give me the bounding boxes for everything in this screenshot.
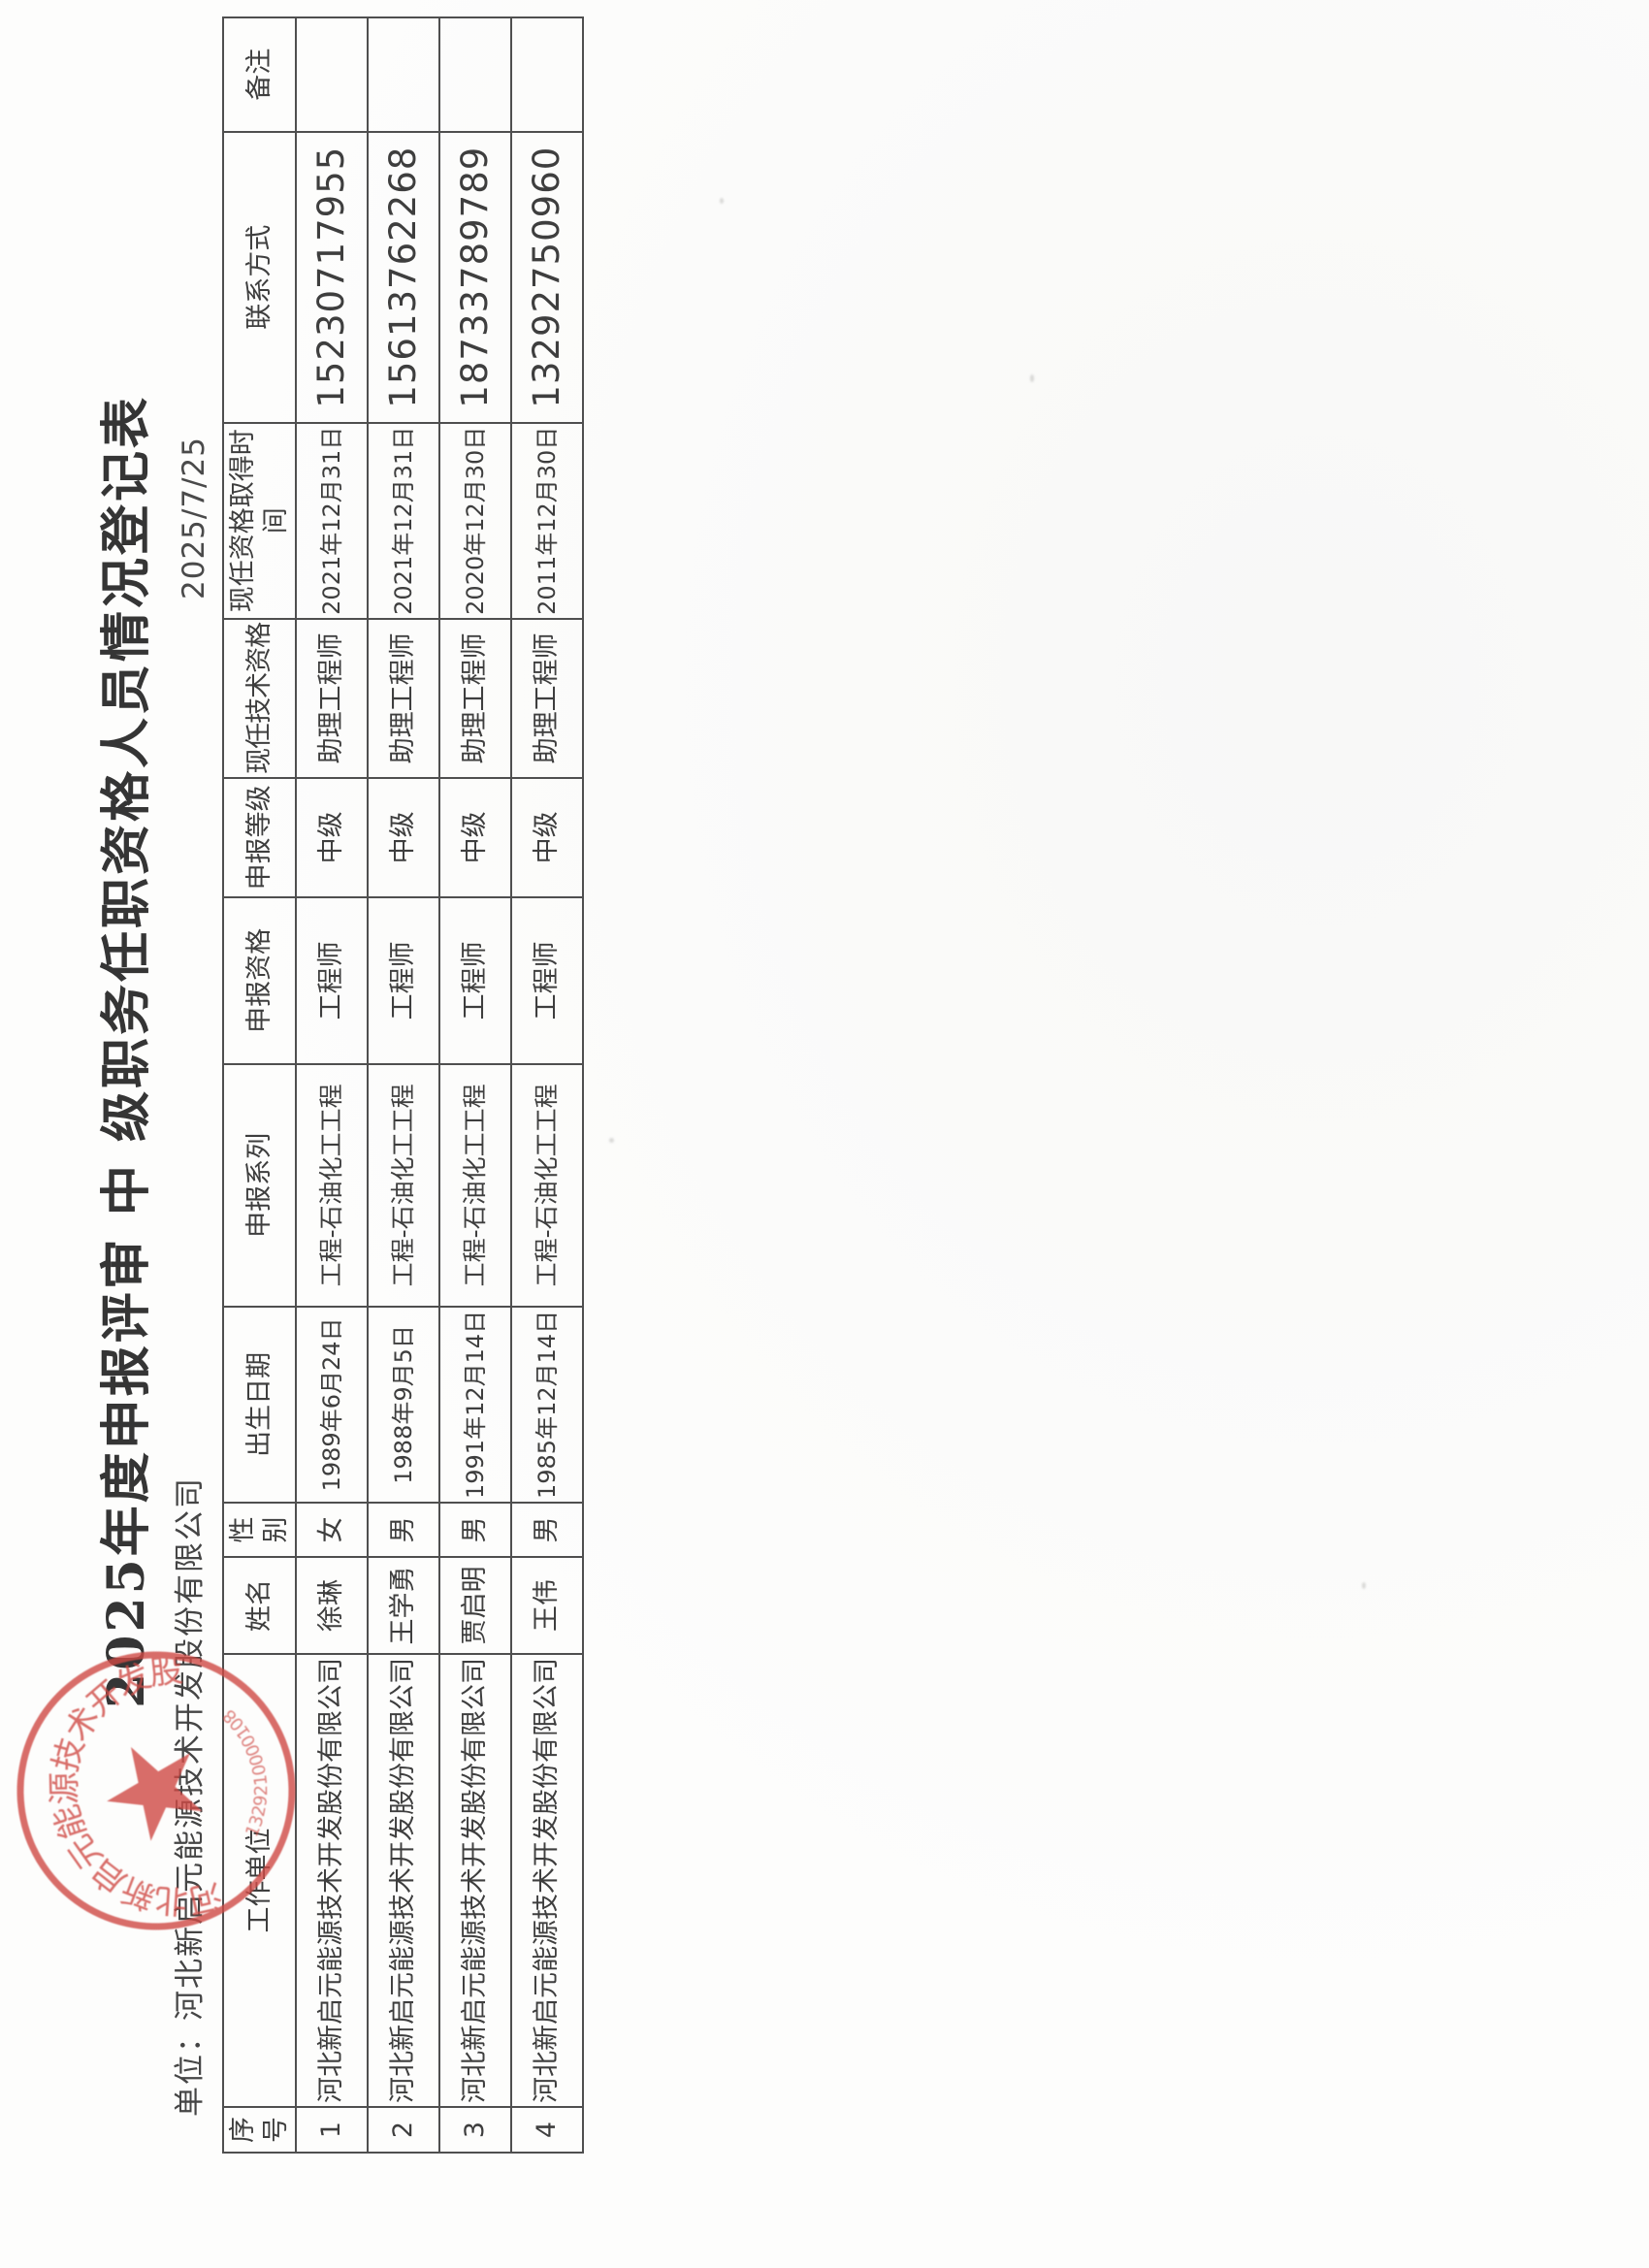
- cell-qual: 工程师: [511, 897, 583, 1064]
- cell-level: 中级: [511, 778, 583, 897]
- header-cell-birth: 出生日期: [223, 1307, 296, 1503]
- cell-remark: [368, 17, 439, 132]
- cell-level: 中级: [439, 778, 511, 897]
- cell-employer: 河北新启元能源技术开发股份有限公司: [296, 1654, 368, 2107]
- scan-speck: [720, 198, 724, 204]
- cell-current: 助理工程师: [511, 619, 583, 778]
- page-title: 2025年度申报评审 中 级职务任职资格人员情况登记表: [85, 395, 158, 1708]
- cell-gender: 男: [511, 1503, 583, 1557]
- cell-obtained: 2021年12月31日: [296, 423, 368, 619]
- header-cell-current: 现任技术资格: [223, 619, 296, 778]
- cell-index: 4: [511, 2107, 583, 2153]
- cell-birth: 1991年12月14日: [439, 1307, 511, 1503]
- scan-speck: [1362, 1582, 1366, 1589]
- cell-birth: 1985年12月14日: [511, 1307, 583, 1503]
- personnel-table: 序号工作单位姓名性别出生日期申报系列申报资格申报等级现任技术资格现任资格取得时间…: [222, 16, 584, 2154]
- cell-contact: 13292750960: [511, 132, 583, 423]
- cell-index: 3: [439, 2107, 511, 2153]
- scanned-page: 2025年度申报评审 中 级职务任职资格人员情况登记表 单位：河北新启元能源技术…: [0, 0, 1649, 2268]
- cell-series: 工程-石油化工工程: [439, 1064, 511, 1307]
- date-label: 2025/7/25: [177, 437, 211, 599]
- cell-birth: 1988年9月5日: [368, 1307, 439, 1503]
- cell-index: 2: [368, 2107, 439, 2153]
- unit-line: 单位：河北新启元能源技术开发股份有限公司: [165, 1476, 209, 2117]
- cell-employer: 河北新启元能源技术开发股份有限公司: [511, 1654, 583, 2107]
- cell-obtained: 2021年12月31日: [368, 423, 439, 619]
- cell-current: 助理工程师: [368, 619, 439, 778]
- cell-qual: 工程师: [368, 897, 439, 1064]
- scan-speck: [1030, 374, 1034, 382]
- table-row-3: 3河北新启元能源技术开发股份有限公司贾启明男1991年12月14日工程-石油化工…: [439, 17, 511, 2153]
- table-row-2: 2河北新启元能源技术开发股份有限公司王学勇男1988年9月5日工程-石油化工工程…: [368, 17, 439, 2153]
- cell-gender: 男: [368, 1503, 439, 1557]
- header-cell-obtained: 现任资格取得时间: [223, 423, 296, 619]
- cell-employer: 河北新启元能源技术开发股份有限公司: [439, 1654, 511, 2107]
- cell-index: 1: [296, 2107, 368, 2153]
- cell-employer: 河北新启元能源技术开发股份有限公司: [368, 1654, 439, 2107]
- cell-remark: [439, 17, 511, 132]
- cell-contact: 15230717955: [296, 132, 368, 423]
- cell-current: 助理工程师: [296, 619, 368, 778]
- cell-remark: [511, 17, 583, 132]
- cell-gender: 男: [439, 1503, 511, 1557]
- cell-qual: 工程师: [439, 897, 511, 1064]
- cell-name: 王伟: [511, 1557, 583, 1654]
- header-cell-gender: 性别: [223, 1503, 296, 1557]
- table-header-row: 序号工作单位姓名性别出生日期申报系列申报资格申报等级现任技术资格现任资格取得时间…: [223, 17, 296, 2153]
- cell-name: 贾启明: [439, 1557, 511, 1654]
- cell-remark: [296, 17, 368, 132]
- cell-series: 工程-石油化工工程: [368, 1064, 439, 1307]
- document-sheet: 2025年度申报评审 中 级职务任职资格人员情况登记表 单位：河北新启元能源技术…: [0, 0, 1649, 2268]
- table-head: 序号工作单位姓名性别出生日期申报系列申报资格申报等级现任技术资格现任资格取得时间…: [223, 17, 296, 2153]
- header-cell-remark: 备注: [223, 17, 296, 132]
- cell-name: 王学勇: [368, 1557, 439, 1654]
- cell-contact: 18733789789: [439, 132, 511, 423]
- cell-current: 助理工程师: [439, 619, 511, 778]
- header-cell-employer: 工作单位: [223, 1654, 296, 2107]
- cell-name: 徐琳: [296, 1557, 368, 1654]
- header-cell-series: 申报系列: [223, 1064, 296, 1307]
- cell-qual: 工程师: [296, 897, 368, 1064]
- header-cell-index: 序号: [223, 2107, 296, 2153]
- header-cell-qual: 申报资格: [223, 897, 296, 1064]
- cell-birth: 1989年6月24日: [296, 1307, 368, 1503]
- cell-obtained: 2020年12月30日: [439, 423, 511, 619]
- cell-series: 工程-石油化工工程: [511, 1064, 583, 1307]
- table-row-1: 1河北新启元能源技术开发股份有限公司徐琳女1989年6月24日工程-石油化工工程…: [296, 17, 368, 2153]
- cell-contact: 15613762268: [368, 132, 439, 423]
- header-cell-contact: 联系方式: [223, 132, 296, 423]
- cell-gender: 女: [296, 1503, 368, 1557]
- header-cell-name: 姓名: [223, 1557, 296, 1654]
- cell-series: 工程-石油化工工程: [296, 1064, 368, 1307]
- cell-level: 中级: [296, 778, 368, 897]
- scan-speck: [609, 1138, 614, 1143]
- table-row-4: 4河北新启元能源技术开发股份有限公司王伟男1985年12月14日工程-石油化工工…: [511, 17, 583, 2153]
- cell-obtained: 2011年12月30日: [511, 423, 583, 619]
- header-cell-level: 申报等级: [223, 778, 296, 897]
- table-body: 1河北新启元能源技术开发股份有限公司徐琳女1989年6月24日工程-石油化工工程…: [296, 17, 583, 2153]
- cell-level: 中级: [368, 778, 439, 897]
